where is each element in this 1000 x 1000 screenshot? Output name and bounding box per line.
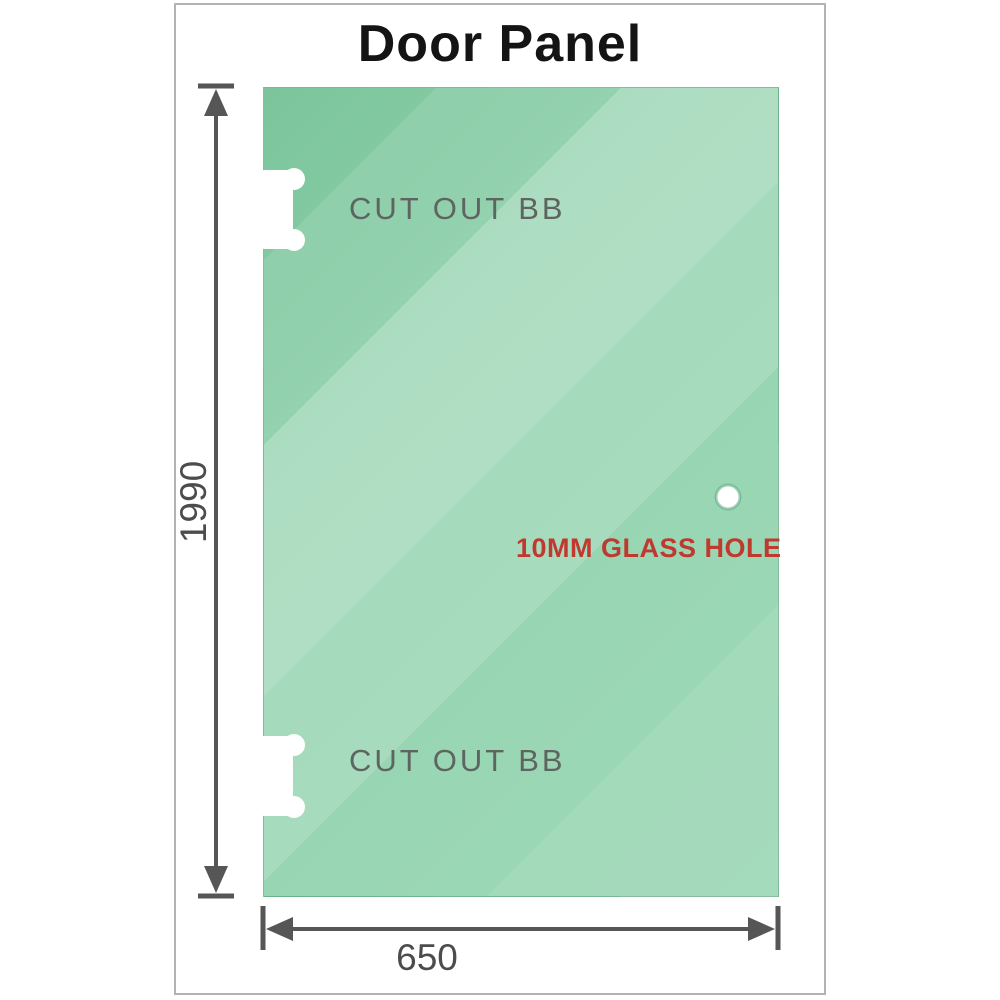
hinge-cutout-top xyxy=(259,168,305,251)
horizontal-dimension-arrow xyxy=(263,906,778,950)
glass-hole-icon xyxy=(716,485,740,509)
hinge-cutout-bottom xyxy=(259,734,305,818)
arrow-right-icon xyxy=(748,917,775,941)
arrow-down-icon xyxy=(204,866,228,893)
arrow-left-icon xyxy=(266,917,293,941)
arrow-up-icon xyxy=(204,89,228,116)
diagram-overlay xyxy=(0,0,1000,1000)
cutout-lobe-icon xyxy=(283,229,305,251)
height-dimension-value: 1990 xyxy=(173,442,213,562)
glass-hole-label: 10MM GLASS HOLE xyxy=(516,533,782,564)
cutout-label-top: CUT OUT BB xyxy=(349,191,566,227)
cutout-lobe-icon xyxy=(283,168,305,190)
cutout-lobe-icon xyxy=(283,734,305,756)
door-panel-diagram: Door Panel xyxy=(0,0,1000,1000)
cutout-label-bottom: CUT OUT BB xyxy=(349,743,566,779)
cutout-lobe-icon xyxy=(283,796,305,818)
width-dimension-value: 650 xyxy=(377,937,477,979)
